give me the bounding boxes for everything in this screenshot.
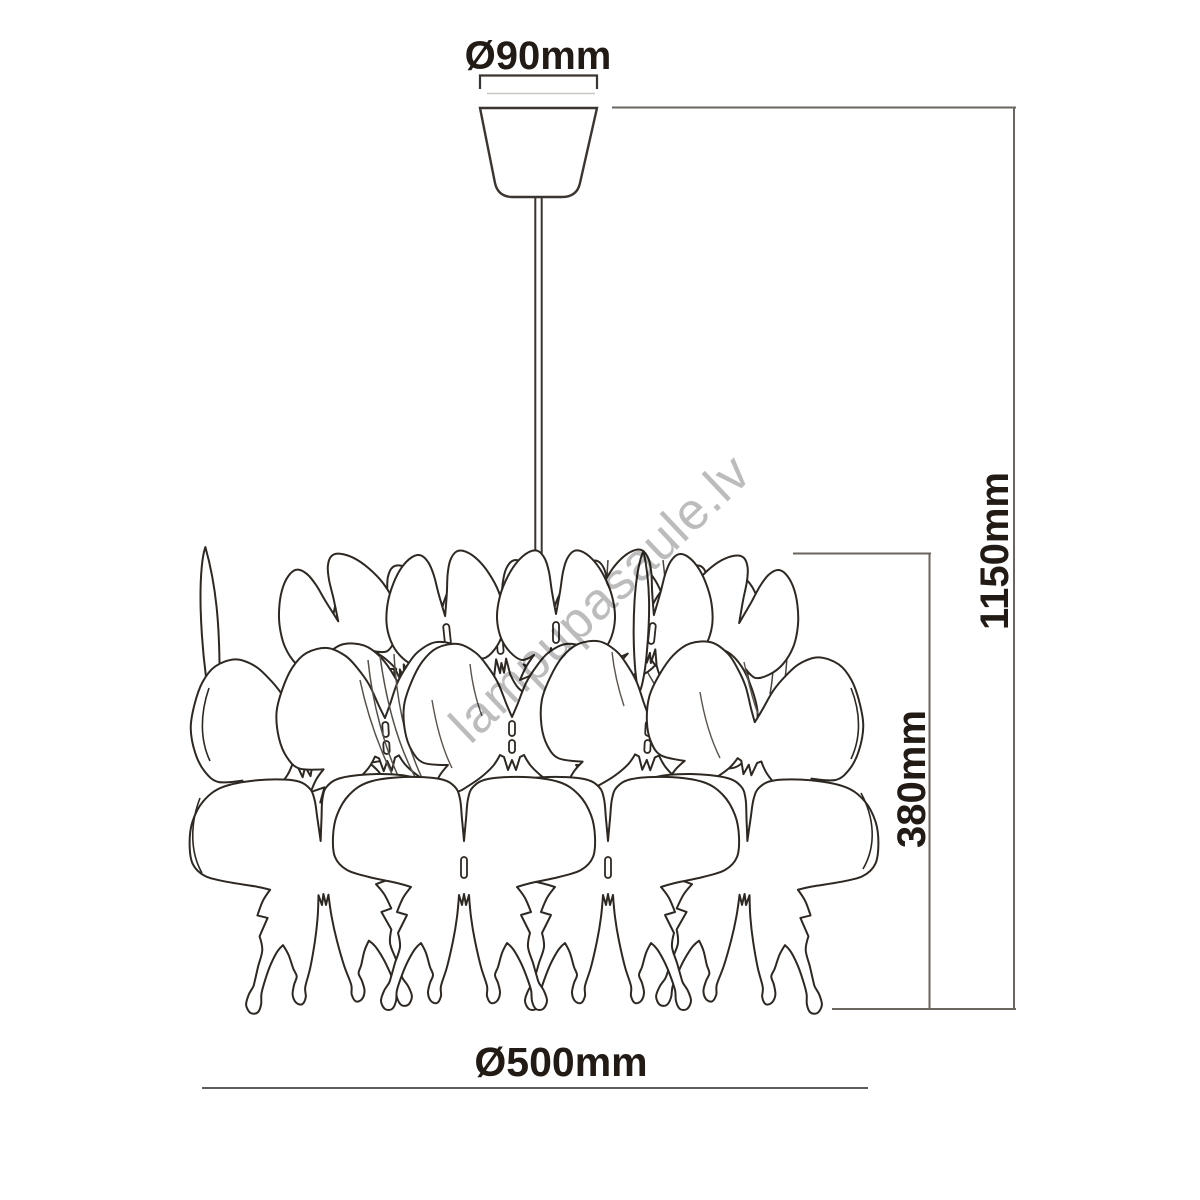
svg-text:380mm: 380mm: [890, 710, 934, 848]
svg-text:1150mm: 1150mm: [973, 472, 1017, 630]
svg-text:Ø500mm: Ø500mm: [474, 1039, 647, 1085]
svg-text:Ø90mm: Ø90mm: [465, 34, 612, 78]
